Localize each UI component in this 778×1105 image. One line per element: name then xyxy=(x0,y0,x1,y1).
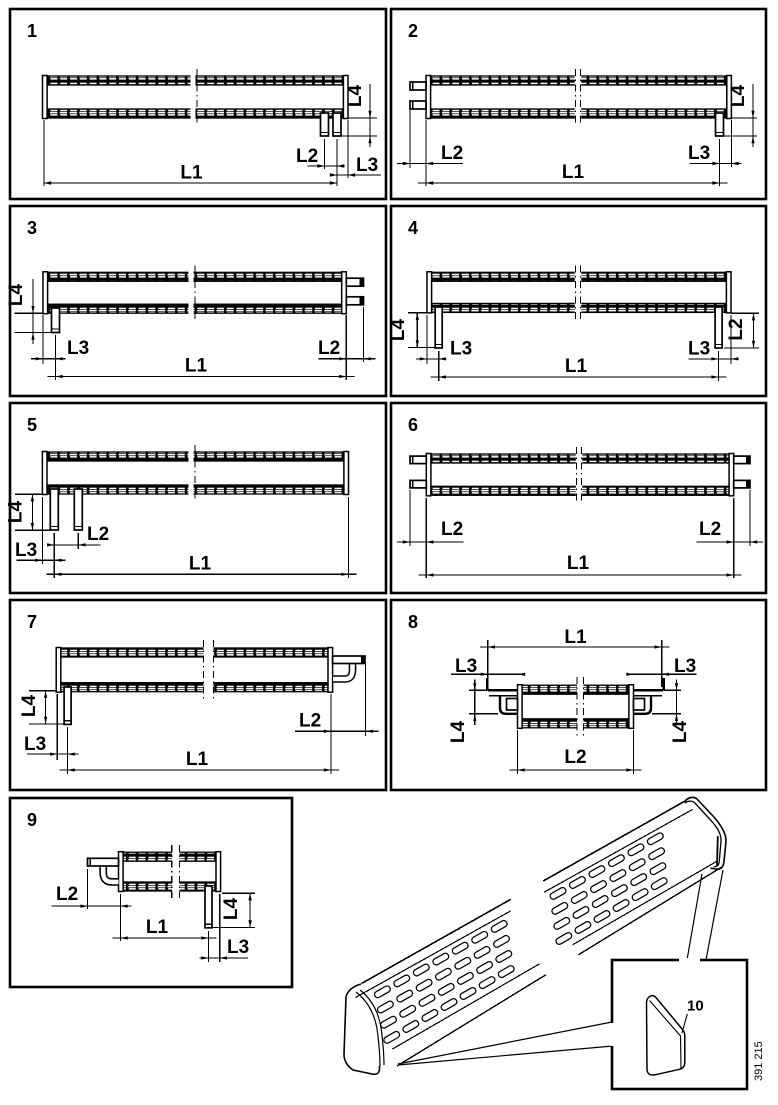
svg-text:L1: L1 xyxy=(180,163,203,184)
svg-text:L2: L2 xyxy=(318,338,340,359)
svg-text:L4: L4 xyxy=(19,694,40,717)
svg-text:L2: L2 xyxy=(441,519,463,540)
svg-text:L4: L4 xyxy=(221,897,242,920)
svg-text:L3: L3 xyxy=(356,155,378,176)
svg-text:L3: L3 xyxy=(455,656,477,677)
svg-text:391 215: 391 215 xyxy=(753,1041,765,1081)
svg-text:L4: L4 xyxy=(345,84,366,107)
svg-text:L4: L4 xyxy=(388,318,409,341)
svg-text:L3: L3 xyxy=(24,734,46,755)
svg-text:5: 5 xyxy=(27,415,37,435)
svg-text:L1: L1 xyxy=(146,917,169,938)
svg-text:L1: L1 xyxy=(562,162,585,183)
svg-text:L3: L3 xyxy=(67,338,89,359)
svg-text:L2: L2 xyxy=(56,884,78,905)
svg-text:4: 4 xyxy=(408,218,418,238)
svg-text:L4: L4 xyxy=(448,720,469,743)
svg-text:L3: L3 xyxy=(688,339,710,360)
svg-text:L1: L1 xyxy=(564,627,587,648)
svg-text:L2: L2 xyxy=(441,143,463,164)
svg-text:L3: L3 xyxy=(227,937,249,958)
svg-text:L2: L2 xyxy=(726,318,747,340)
svg-text:L2: L2 xyxy=(87,524,109,545)
svg-text:L3: L3 xyxy=(688,143,710,164)
svg-text:3: 3 xyxy=(27,218,37,238)
svg-text:8: 8 xyxy=(408,612,418,632)
svg-text:L4: L4 xyxy=(728,84,749,107)
svg-text:L2: L2 xyxy=(564,747,586,768)
svg-text:L1: L1 xyxy=(186,749,209,770)
svg-text:L4: L4 xyxy=(6,500,27,523)
svg-text:10: 10 xyxy=(687,998,704,1015)
svg-text:L2: L2 xyxy=(299,711,321,732)
svg-text:L1: L1 xyxy=(565,356,588,377)
svg-text:L3: L3 xyxy=(674,656,696,677)
svg-text:L4: L4 xyxy=(6,283,27,306)
svg-text:L1: L1 xyxy=(189,554,212,575)
svg-text:2: 2 xyxy=(408,21,418,41)
svg-text:L1: L1 xyxy=(567,553,590,574)
svg-text:L3: L3 xyxy=(15,540,37,561)
svg-text:1: 1 xyxy=(27,21,37,41)
svg-text:9: 9 xyxy=(27,810,37,830)
svg-text:7: 7 xyxy=(27,612,37,632)
svg-text:6: 6 xyxy=(408,415,418,435)
svg-text:L3: L3 xyxy=(450,339,472,360)
svg-text:L4: L4 xyxy=(670,720,691,743)
svg-text:L1: L1 xyxy=(185,356,208,377)
svg-text:L2: L2 xyxy=(699,519,721,540)
svg-text:L2: L2 xyxy=(296,146,318,167)
